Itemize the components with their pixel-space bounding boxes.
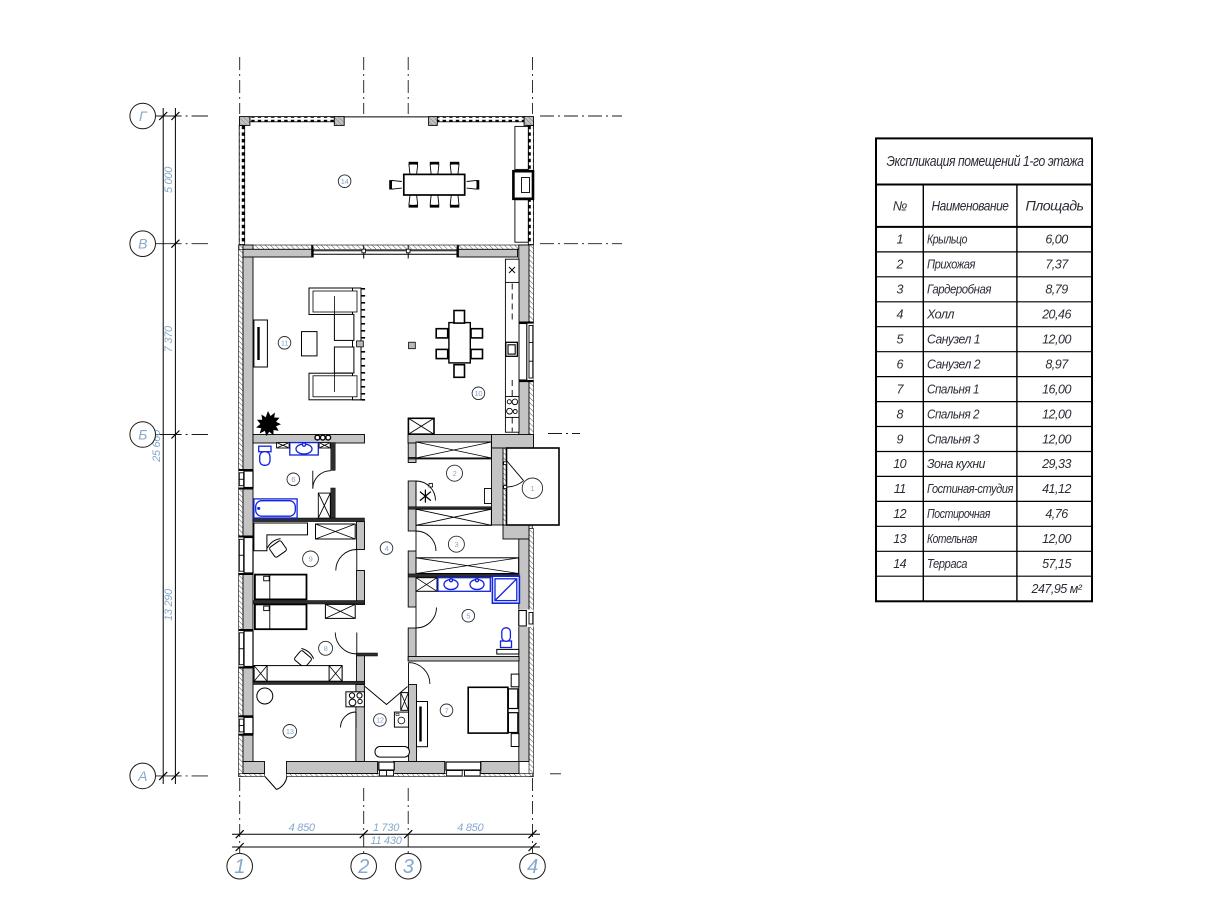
svg-text:Экспликация помещений 1-го эта: Экспликация помещений 1-го этажа: [887, 154, 1084, 170]
svg-text:1: 1: [530, 484, 534, 493]
svg-text:Прихожая: Прихожая: [927, 258, 976, 272]
svg-text:1: 1: [896, 233, 902, 247]
svg-text:4: 4: [385, 544, 389, 553]
svg-text:Площадь: Площадь: [1026, 199, 1084, 214]
svg-text:20,46: 20,46: [1041, 308, 1071, 322]
svg-text:Санузел 2: Санузел 2: [927, 357, 981, 371]
svg-text:12,00: 12,00: [1042, 432, 1071, 446]
svg-text:13 290: 13 290: [163, 588, 175, 621]
svg-text:12: 12: [893, 507, 906, 521]
svg-text:14: 14: [893, 557, 906, 571]
svg-text:16,00: 16,00: [1042, 382, 1071, 396]
svg-text:9: 9: [309, 555, 313, 564]
svg-text:10: 10: [475, 389, 483, 398]
svg-text:8: 8: [896, 407, 903, 421]
svg-text:4: 4: [527, 856, 538, 878]
svg-text:13: 13: [893, 532, 906, 546]
svg-text:6: 6: [896, 357, 903, 371]
svg-text:4: 4: [896, 308, 903, 322]
svg-text:Спальня 2: Спальня 2: [927, 407, 980, 421]
svg-text:12,00: 12,00: [1042, 333, 1071, 347]
svg-text:12: 12: [376, 716, 384, 725]
svg-text:8,79: 8,79: [1045, 283, 1068, 297]
svg-text:7,37: 7,37: [1045, 258, 1069, 272]
svg-text:11: 11: [894, 482, 906, 496]
svg-text:247,95 м²: 247,95 м²: [1031, 582, 1083, 596]
svg-text:1 730: 1 730: [373, 822, 400, 834]
svg-text:5: 5: [466, 611, 470, 620]
svg-text:6: 6: [291, 475, 295, 484]
svg-text:41,12: 41,12: [1042, 482, 1071, 496]
svg-text:2: 2: [895, 258, 903, 272]
svg-text:11: 11: [281, 339, 288, 348]
svg-text:6,00: 6,00: [1045, 233, 1068, 247]
svg-text:7: 7: [445, 706, 449, 715]
svg-text:13: 13: [286, 727, 294, 736]
svg-text:В: В: [138, 236, 147, 252]
svg-text:Наименование: Наименование: [932, 199, 1009, 214]
svg-text:5: 5: [896, 333, 903, 347]
svg-text:Крыльцо: Крыльцо: [927, 233, 967, 247]
svg-text:8,97: 8,97: [1045, 357, 1069, 371]
svg-text:1: 1: [234, 856, 245, 878]
svg-text:Гардеробная: Гардеробная: [927, 283, 992, 297]
svg-text:3: 3: [896, 283, 903, 297]
svg-text:Постирочная: Постирочная: [927, 507, 991, 521]
svg-text:А: А: [137, 768, 147, 784]
svg-text:11 430: 11 430: [370, 835, 402, 847]
svg-text:№: №: [893, 199, 908, 214]
svg-text:Котельная: Котельная: [927, 532, 978, 546]
svg-text:12,00: 12,00: [1042, 407, 1071, 421]
svg-text:2: 2: [357, 856, 369, 878]
svg-text:Зона кухни: Зона кухни: [927, 457, 986, 471]
svg-text:4 850: 4 850: [457, 822, 484, 834]
svg-text:57,15: 57,15: [1042, 557, 1071, 571]
svg-text:10: 10: [893, 457, 906, 471]
svg-text:Холл: Холл: [926, 308, 954, 322]
svg-text:3: 3: [403, 856, 414, 878]
svg-text:Спальня 1: Спальня 1: [927, 382, 979, 396]
svg-text:Санузел 1: Санузел 1: [927, 333, 980, 347]
svg-text:Гостиная-студия: Гостиная-студия: [927, 482, 1014, 496]
svg-text:4,76: 4,76: [1045, 507, 1068, 521]
svg-text:8: 8: [324, 644, 328, 653]
svg-text:3: 3: [454, 540, 458, 549]
svg-text:2: 2: [453, 469, 457, 478]
svg-text:12,00: 12,00: [1042, 532, 1071, 546]
svg-text:Б: Б: [138, 427, 147, 443]
svg-text:5 000: 5 000: [163, 166, 175, 193]
svg-text:4 850: 4 850: [289, 822, 316, 834]
svg-text:Терраса: Терраса: [927, 557, 967, 571]
svg-text:9: 9: [896, 432, 903, 446]
svg-text:Спальня 3: Спальня 3: [927, 432, 980, 446]
svg-text:7 370: 7 370: [163, 325, 175, 352]
svg-text:29,33: 29,33: [1041, 457, 1071, 471]
svg-text:14: 14: [341, 177, 349, 186]
